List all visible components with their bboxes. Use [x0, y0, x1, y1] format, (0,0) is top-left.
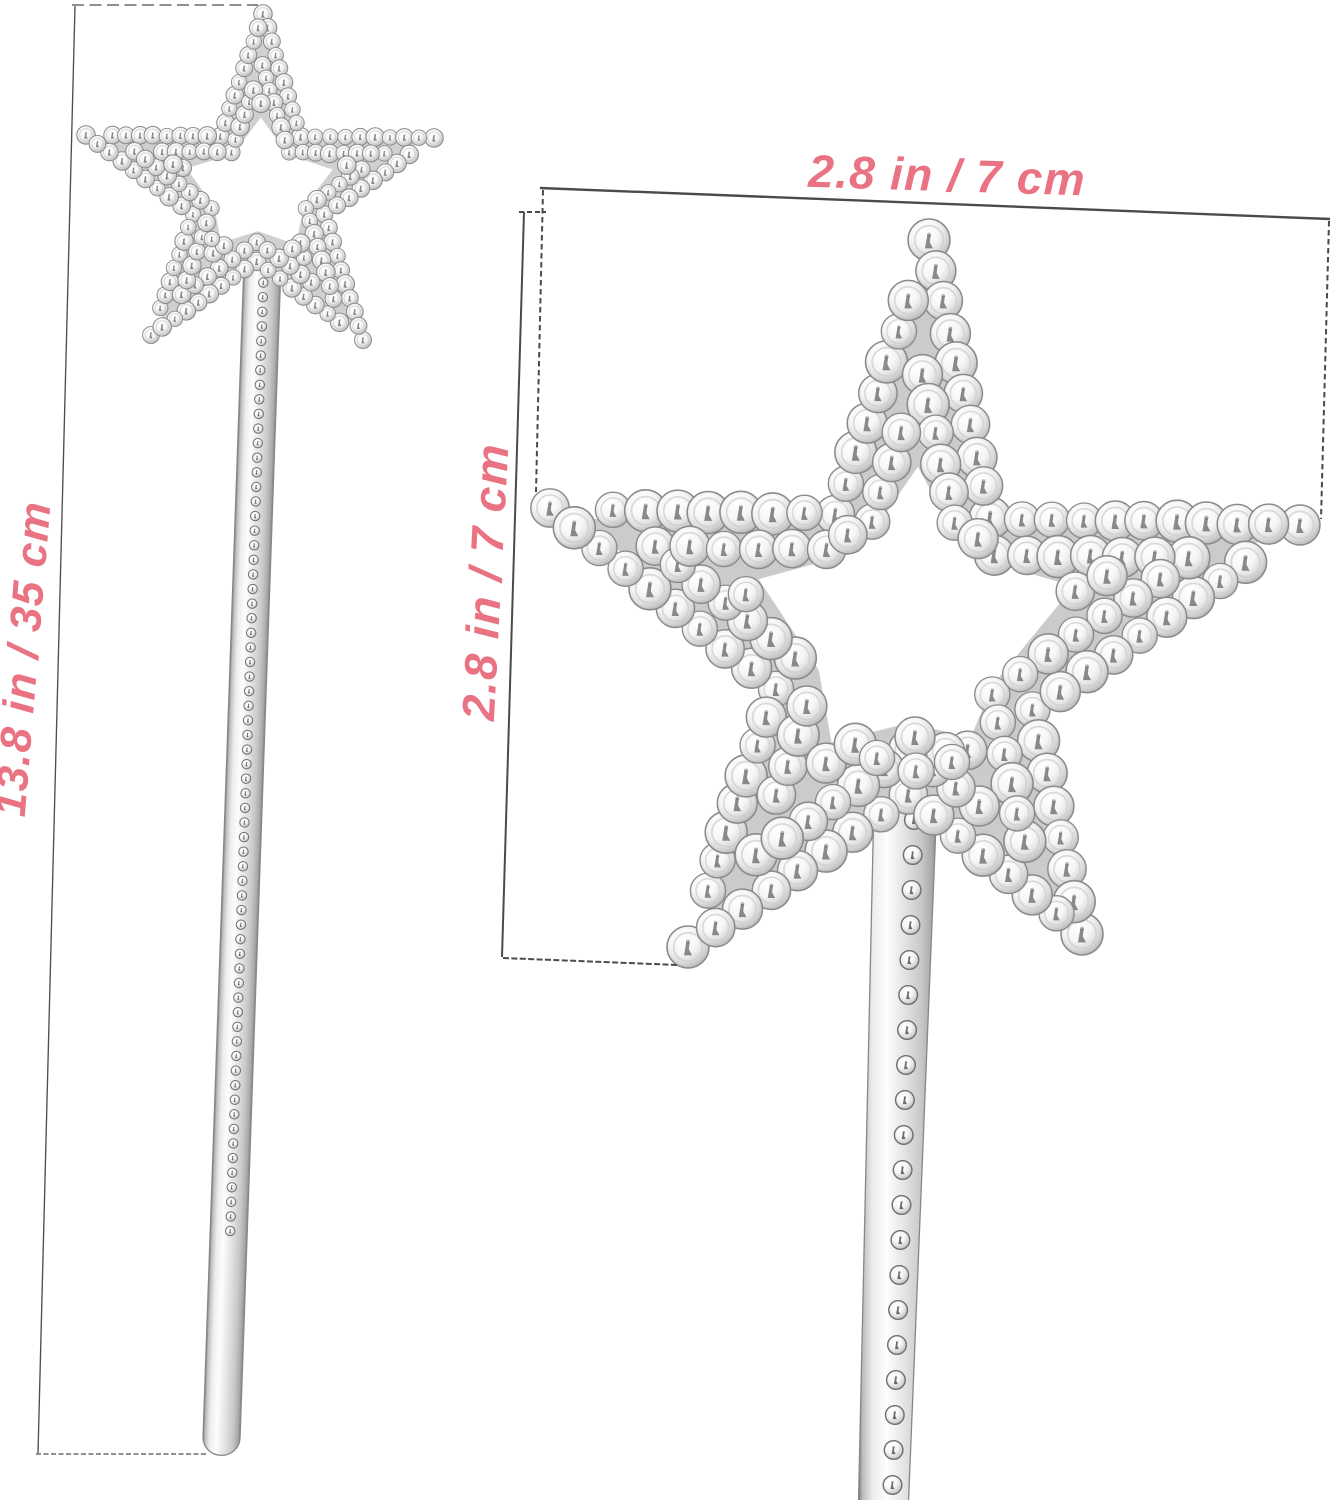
svg-text:2.8 in / 7 cm: 2.8 in / 7 cm — [807, 145, 1087, 206]
